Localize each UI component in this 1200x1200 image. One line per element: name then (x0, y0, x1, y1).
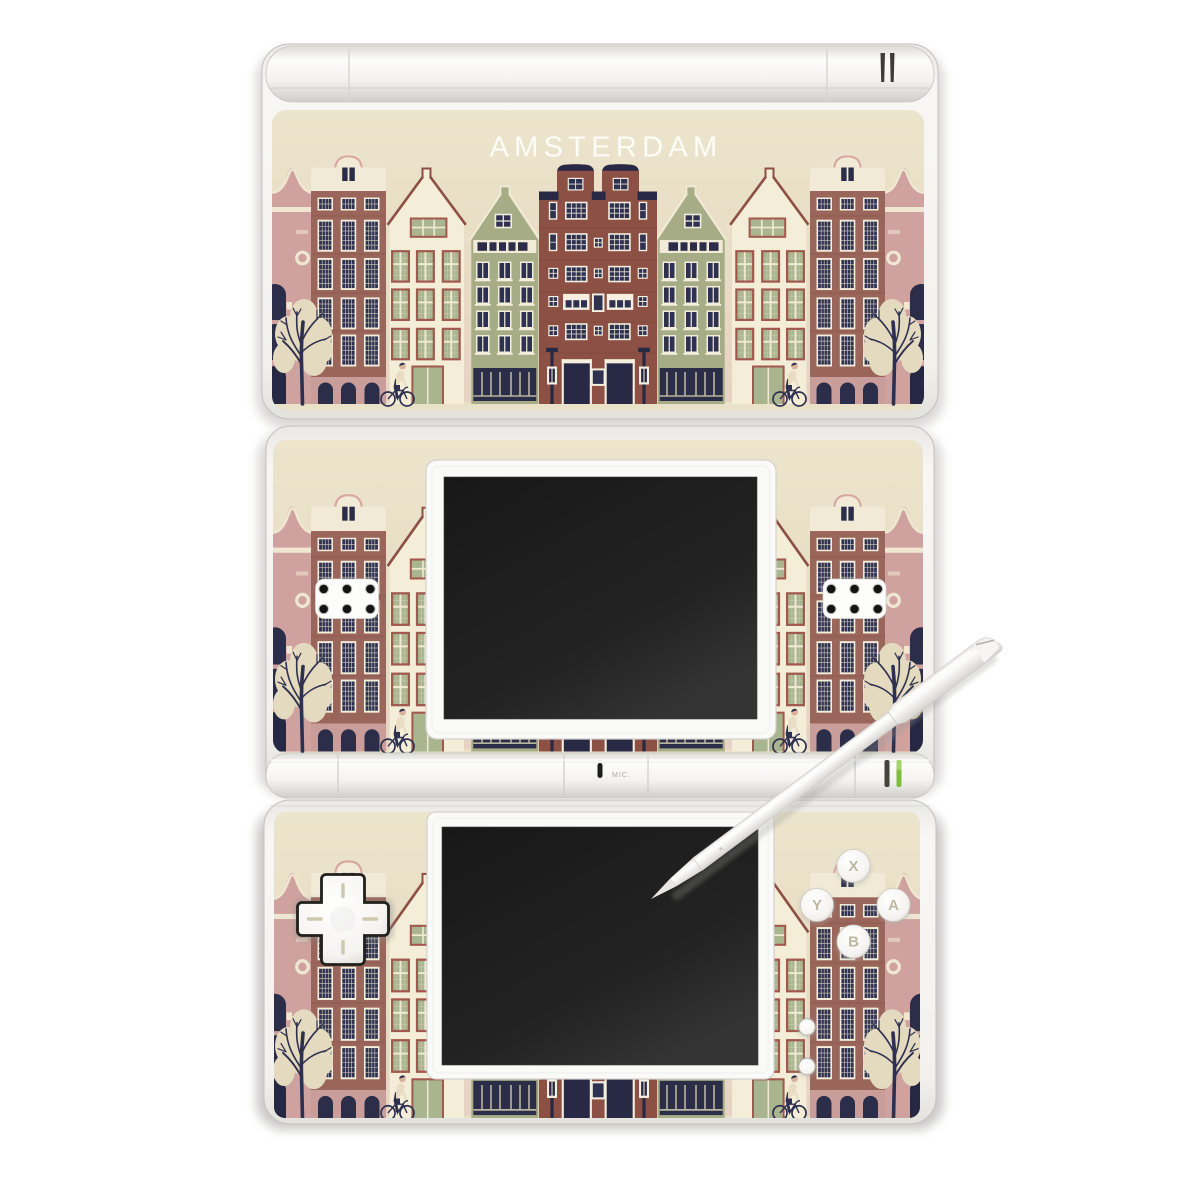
svg-text:A: A (888, 897, 899, 914)
svg-text:B: B (848, 934, 859, 951)
svg-text:X: X (848, 858, 858, 875)
svg-text:MIC.: MIC. (612, 772, 631, 779)
svg-text:Y: Y (812, 897, 822, 914)
